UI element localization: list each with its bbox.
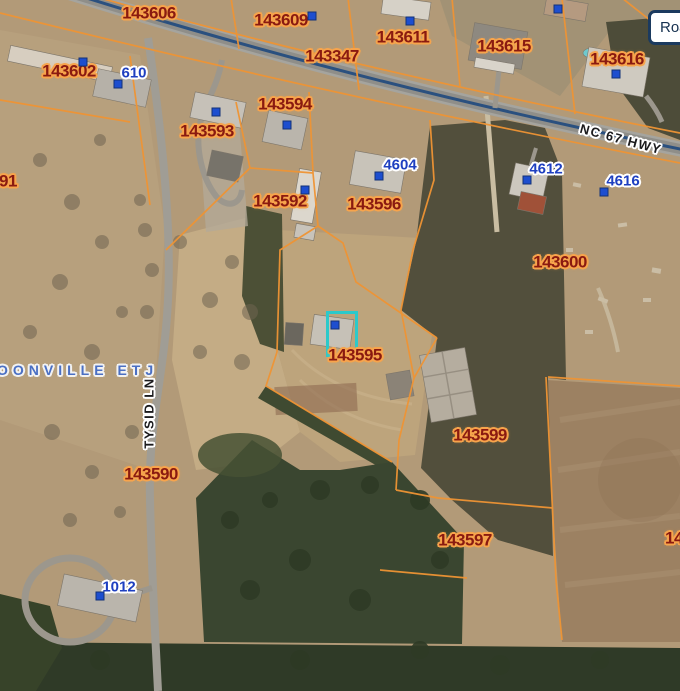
- road-tool-button[interactable]: Roa: [648, 10, 680, 45]
- selected-parcel-highlight: [326, 311, 358, 357]
- map-canvas[interactable]: 1436061436091436111433471436151436161436…: [0, 0, 680, 691]
